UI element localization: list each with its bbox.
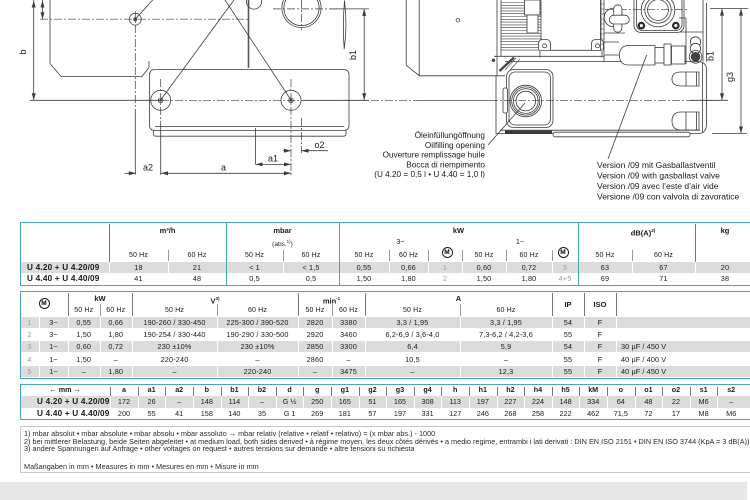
svg-text:b1: b1 (348, 50, 358, 60)
svg-text:b: b (18, 49, 28, 54)
svg-text:Versione /09 con valvola di za: Versione /09 con valvola di zavoratice (597, 192, 739, 202)
svg-text:Version /09 mit Gasballastvent: Version /09 mit Gasballastventil (597, 160, 716, 170)
svg-text:b1: b1 (706, 51, 716, 61)
svg-text:Bocca di riempimento: Bocca di riempimento (406, 160, 485, 169)
svg-text:Öleinfüllungöffnung: Öleinfüllungöffnung (415, 130, 486, 140)
svg-text:Version /09 with gasballast va: Version /09 with gasballast valve (597, 171, 720, 181)
svg-text:Ouverture remplissage huile: Ouverture remplissage huile (383, 151, 486, 160)
svg-text:Version /09 avec l’este d’air: Version /09 avec l’este d’air vide (597, 181, 719, 191)
svg-text:Oilfilling opening: Oilfilling opening (425, 141, 486, 150)
svg-text:a: a (221, 163, 226, 173)
svg-text:g3: g3 (725, 72, 735, 82)
svg-text:o2: o2 (314, 140, 324, 150)
svg-text:(U 4.20 = 0,5 l • U 4.40 = 1,0: (U 4.20 = 0,5 l • U 4.40 = 1,0 l) (374, 170, 485, 179)
svg-text:a2: a2 (143, 163, 153, 173)
svg-text:a1: a1 (268, 154, 278, 164)
